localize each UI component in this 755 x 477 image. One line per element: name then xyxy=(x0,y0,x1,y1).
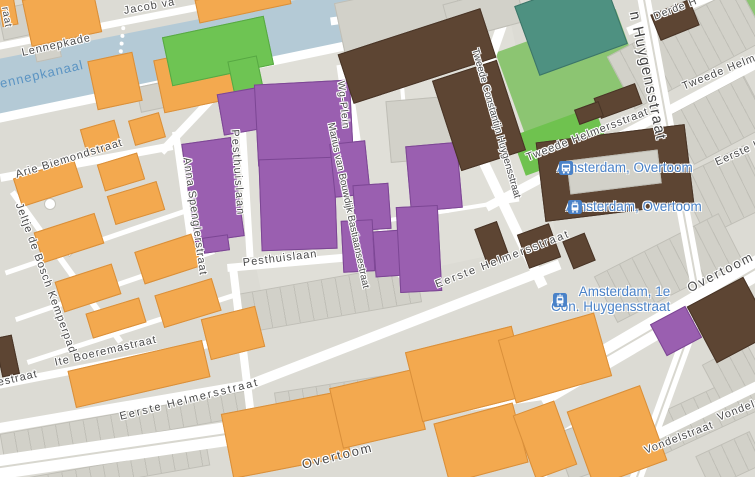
tram-icon xyxy=(553,293,567,307)
building-brown xyxy=(0,335,20,378)
building-purple xyxy=(258,157,337,252)
transit-stop-label: Amsterdam, Overtoom xyxy=(566,200,702,215)
transit-stop-label: Amsterdam, Overtoom xyxy=(557,161,693,176)
path-circle xyxy=(44,198,56,210)
tram-icon xyxy=(568,200,582,214)
transit-stop-label: Amsterdam, 1e Con. Huygensstraat xyxy=(551,285,670,315)
building-orange xyxy=(87,52,142,110)
building-orange xyxy=(128,112,166,146)
building-purple xyxy=(405,142,463,212)
building-purple xyxy=(202,234,230,253)
bus-icon xyxy=(559,161,573,175)
transit-stop-huygensstraat[interactable]: Amsterdam, 1e Con. Huygensstraat xyxy=(551,285,670,315)
house-row xyxy=(695,431,755,477)
building-orange xyxy=(201,306,265,360)
building-orange xyxy=(498,312,612,403)
map-canvas[interactable]: Lennepkanaal Jacob va Lennepkade raat Ar… xyxy=(0,0,755,477)
